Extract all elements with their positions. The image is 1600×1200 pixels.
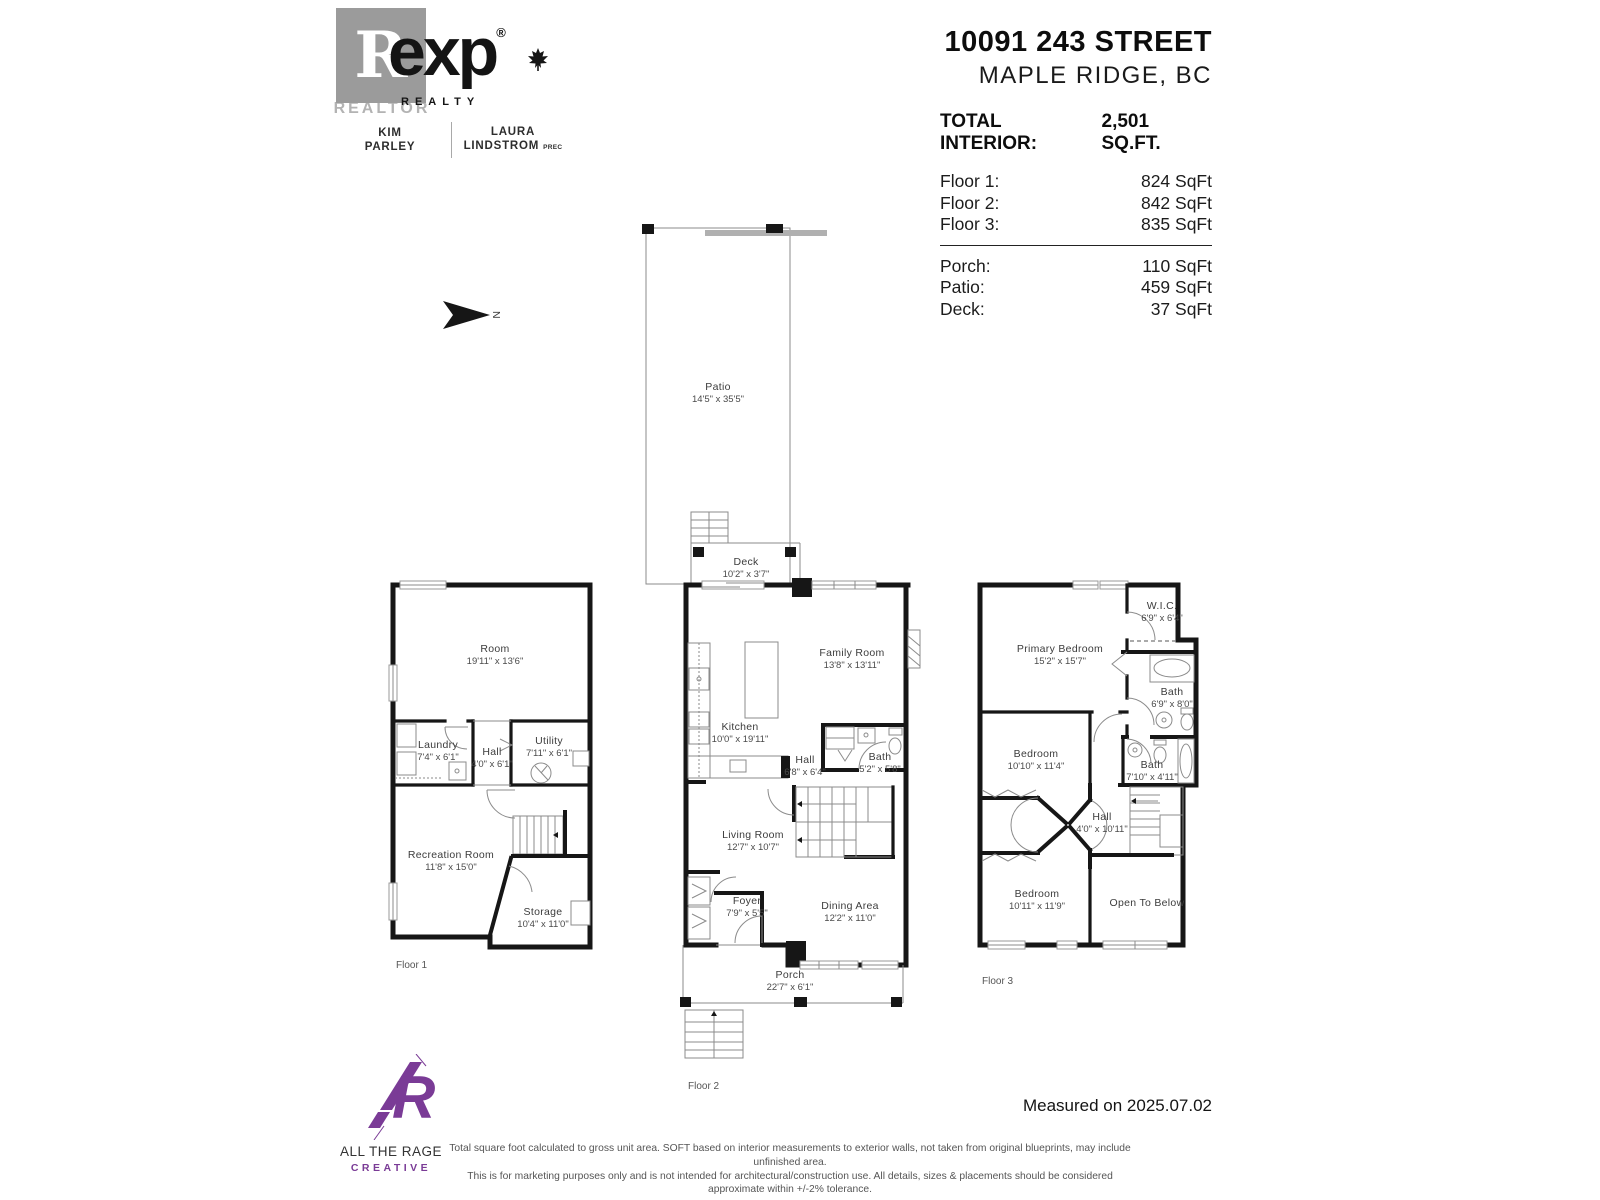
room-label: Kitchen xyxy=(721,721,758,733)
room-dims: 7'10" x 4'11" xyxy=(1126,772,1177,783)
floor2-plan: Patio 14'5" x 35'5" Deck 10'2" x 3'7" xyxy=(642,224,920,1092)
disclaimer-line1: Total square foot calculated to gross un… xyxy=(445,1142,1135,1170)
room-label: Living Room xyxy=(722,829,784,841)
all-the-rage-logo-icon: R xyxy=(366,1054,444,1145)
room-dims: 6'8" x 6'4" xyxy=(784,767,826,778)
agent-kim-parley: KIM PARLEY xyxy=(334,126,446,154)
floor1-plan: Room 19'11" x 13'6" Laundry 7'4" x 6'1" … xyxy=(389,581,590,971)
room-dims: 19'11" x 13'6" xyxy=(467,656,524,667)
room-label: Bath xyxy=(1161,686,1184,698)
room-label: Family Room xyxy=(819,647,884,659)
exp-name: exp xyxy=(388,14,496,90)
room-label: Dining Area xyxy=(821,900,879,912)
room-label: Utility xyxy=(535,735,563,747)
floorplans-drawing: N xyxy=(0,0,1600,1200)
room-label: Bath xyxy=(1141,759,1164,771)
room-label: Laundry xyxy=(418,739,458,751)
room-dims: 7'4" x 6'1" xyxy=(417,752,459,763)
measured-date: Measured on 2025.07.02 xyxy=(940,1096,1212,1116)
studio-sub: CREATIVE xyxy=(330,1162,452,1174)
room-dims: 10'0" x 19'11" xyxy=(712,734,769,745)
room-dims: 11'8" x 15'0" xyxy=(425,862,476,873)
room-label: Deck xyxy=(733,556,759,568)
room-dims: 12'7" x 10'7" xyxy=(727,842,779,853)
room-label: Hall xyxy=(1092,811,1111,823)
room-dims: 6'9" x 8'0" xyxy=(1151,699,1193,710)
room-dims: 22'7" x 6'1" xyxy=(767,982,814,993)
room-label: Porch xyxy=(776,969,805,981)
studio-name: ALL THE RAGE xyxy=(330,1144,452,1159)
agent-names: KIM PARLEY LAURA LINDSTROM PREC xyxy=(334,122,570,158)
svg-text:R: R xyxy=(392,1064,435,1131)
room-dims: 15'2" x 15'7" xyxy=(1034,656,1086,667)
room-label: Hall xyxy=(795,754,814,766)
agent1-last: PARLEY xyxy=(334,140,446,154)
room-dims: 4'0" x 6'1" xyxy=(471,759,513,770)
room-dims: 10'4" x 11'0" xyxy=(517,919,568,930)
exp-logo: exp® xyxy=(388,18,506,86)
room-dims: 14'5" x 35'5" xyxy=(692,394,744,405)
north-letter: N xyxy=(490,311,502,319)
disclaimer-line2: This is for marketing purposes only and … xyxy=(445,1170,1135,1198)
floor3-plan: Primary Bedroom 15'2" x 15'7" W.I.C. 6'9… xyxy=(980,581,1196,987)
room-label: W.I.C. xyxy=(1147,600,1177,612)
floor3-caption: Floor 3 xyxy=(982,976,1014,987)
room-label: Open To Below xyxy=(1110,897,1185,909)
agent2-last-row: LINDSTROM PREC xyxy=(457,139,569,155)
registered-mark: ® xyxy=(496,25,506,40)
room-label: Bath xyxy=(869,751,892,763)
room-label: Primary Bedroom xyxy=(1017,643,1103,655)
disclaimer: Total square foot calculated to gross un… xyxy=(445,1142,1135,1197)
room-label: Foyer xyxy=(733,895,762,907)
floor2-caption: Floor 2 xyxy=(688,1081,720,1092)
maple-leaf-icon xyxy=(527,48,549,77)
room-dims: 5'2" x 5'8" xyxy=(859,764,901,775)
floor1-caption: Floor 1 xyxy=(396,960,428,971)
room-dims: 10'11" x 11'9" xyxy=(1009,901,1065,912)
room-dims: 6'9" x 6'4" xyxy=(1141,613,1183,624)
room-dims: 13'8" x 13'11" xyxy=(824,660,881,671)
room-dims: 10'10" x 11'4" xyxy=(1008,761,1065,772)
room-label: Room xyxy=(480,643,509,655)
agent-laura-lindstrom: LAURA LINDSTROM PREC xyxy=(457,125,569,155)
agent-divider xyxy=(451,122,452,158)
floorplan-flyer: R REALTOR exp® REALTY KIM PARLEY LAURA L… xyxy=(0,0,1600,1200)
north-arrow-icon: N xyxy=(443,301,502,329)
room-label: Hall xyxy=(482,746,501,758)
agent1-first: KIM xyxy=(334,126,446,140)
room-dims: 10'2" x 3'7" xyxy=(723,569,770,580)
room-label: Patio xyxy=(705,381,730,393)
room-label: Recreation Room xyxy=(408,849,494,861)
agent2-first: LAURA xyxy=(457,125,569,139)
room-label: Bedroom xyxy=(1014,748,1059,760)
room-dims: 12'2" x 11'0" xyxy=(824,913,875,924)
agent2-suffix: PREC xyxy=(543,144,562,151)
room-dims: 7'9" x 5'5" xyxy=(726,908,768,919)
room-label: Bedroom xyxy=(1015,888,1060,900)
room-label: Storage xyxy=(524,906,563,918)
room-dims: 7'11" x 6'1" xyxy=(526,748,572,759)
agent2-last: LINDSTROM xyxy=(464,140,540,152)
exp-realty-sub: REALTY xyxy=(401,96,480,108)
room-dims: 4'0" x 10'11" xyxy=(1076,824,1127,835)
